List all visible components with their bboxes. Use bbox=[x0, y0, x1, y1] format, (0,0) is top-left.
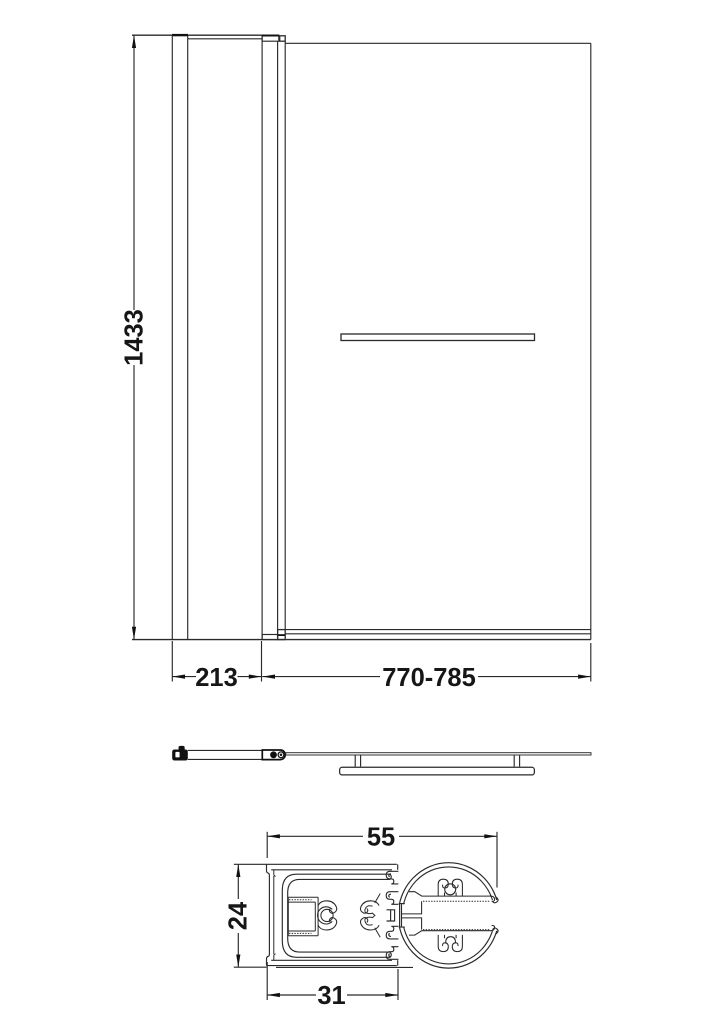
svg-text:770-785: 770-785 bbox=[382, 664, 476, 692]
svg-text:31: 31 bbox=[317, 982, 345, 1010]
svg-text:213: 213 bbox=[195, 664, 238, 692]
svg-text:55: 55 bbox=[367, 823, 395, 851]
svg-text:1433: 1433 bbox=[121, 309, 149, 366]
svg-text:24: 24 bbox=[224, 901, 252, 930]
